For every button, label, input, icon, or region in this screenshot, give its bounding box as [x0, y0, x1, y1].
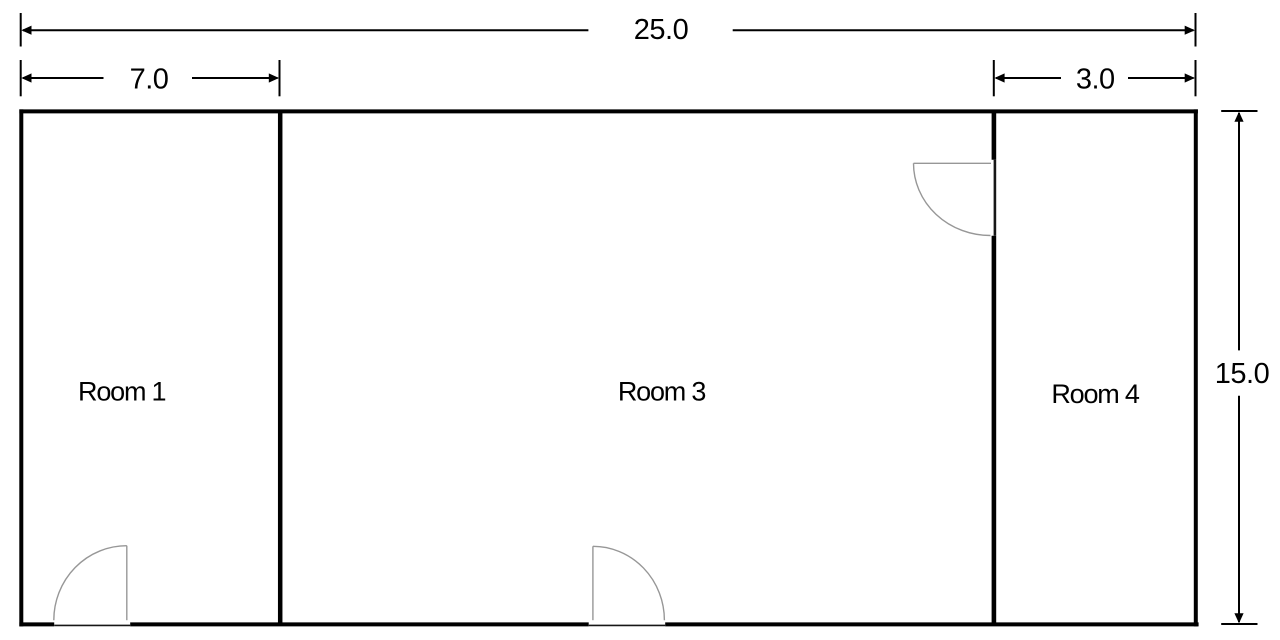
- svg-text:15.0: 15.0: [1215, 358, 1269, 390]
- svg-text:7.0: 7.0: [130, 63, 169, 95]
- svg-text:Room 1: Room 1: [78, 376, 166, 406]
- svg-text:3.0: 3.0: [1076, 63, 1115, 95]
- svg-text:Room 3: Room 3: [618, 376, 706, 406]
- svg-text:25.0: 25.0: [634, 14, 688, 46]
- svg-text:Room 4: Room 4: [1051, 379, 1140, 409]
